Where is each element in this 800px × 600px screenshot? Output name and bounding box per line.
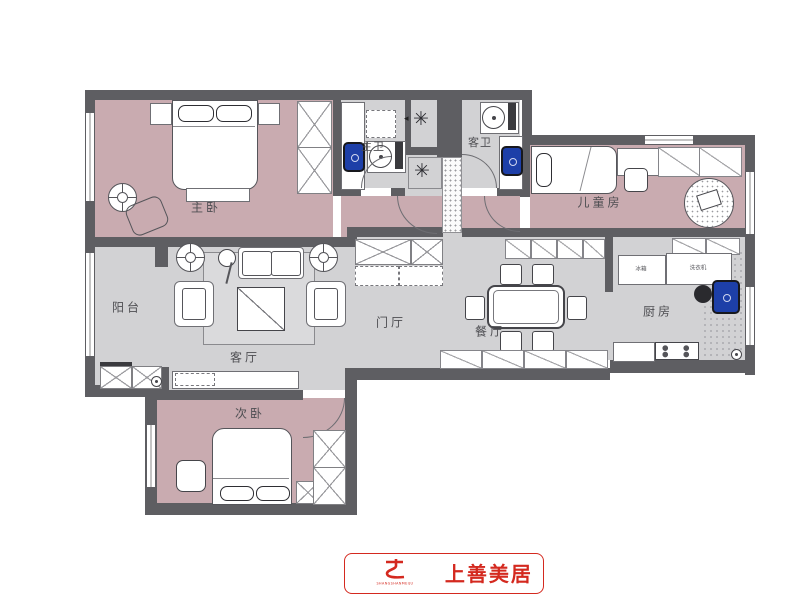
room-label-foyer: 门厅	[376, 314, 406, 331]
sideboard-cabinet	[557, 239, 583, 259]
gas-stove	[655, 342, 699, 360]
balcony-cabinet	[100, 366, 132, 389]
kitchen-sink	[712, 280, 740, 314]
wardrobe	[297, 101, 332, 148]
window	[746, 172, 754, 234]
wall-segment	[391, 188, 405, 196]
desk-chair	[624, 168, 648, 192]
sofa-seat	[271, 251, 301, 276]
floor-drain	[731, 349, 742, 360]
room-label-second-bedroom: 次卧	[235, 405, 265, 422]
shoe-cabinet	[355, 266, 399, 286]
kitchen-counter	[613, 342, 655, 362]
armchair-seat	[314, 288, 338, 320]
pillow	[256, 486, 290, 501]
pillow	[536, 153, 552, 187]
dining-cabinet	[440, 350, 482, 369]
window	[645, 136, 693, 144]
bed-sheet-line	[173, 126, 255, 127]
toilet-bowl	[482, 106, 505, 129]
nightstand	[150, 103, 172, 125]
room-label-kitchen: 厨房	[643, 303, 673, 320]
nightstand	[258, 103, 280, 125]
toilet-tank	[395, 142, 403, 169]
wall-segment	[522, 135, 755, 145]
ceiling-light-icon	[309, 243, 338, 272]
dining-table-inner	[493, 290, 559, 324]
room-label-living-room: 客厅	[230, 349, 260, 366]
pillow	[178, 105, 214, 122]
wall-segment	[333, 100, 341, 196]
wall-segment	[520, 228, 755, 237]
room-label-master-bedroom: 主卧	[191, 199, 221, 216]
sofa-seat	[242, 251, 272, 276]
wall-segment	[405, 147, 442, 155]
logo-mark-column: SHANGSHANMEIJU	[351, 557, 439, 590]
closet-bifold	[658, 147, 701, 177]
dining-cabinet	[524, 350, 566, 369]
logo-mark-icon	[382, 557, 408, 581]
shoe-cabinet	[399, 266, 443, 286]
brand-logo: SHANGSHANMEIJU 上善美居	[344, 553, 544, 594]
dining-cabinet	[566, 350, 608, 369]
window	[746, 287, 754, 345]
wall-segment	[155, 247, 168, 267]
logo-subtext: SHANGSHANMEIJU	[376, 582, 413, 585]
window	[86, 113, 94, 201]
pipe-shaft	[442, 157, 462, 233]
coffee-table	[237, 287, 285, 331]
bed-sheet-line	[213, 478, 289, 479]
dining-chair	[532, 264, 554, 285]
duct-arrow-icon: ◂	[404, 114, 409, 124]
ceiling-light-icon	[176, 243, 205, 272]
sideboard-cabinet	[583, 239, 605, 259]
dining-chair	[567, 296, 587, 320]
dining-cabinet	[482, 350, 524, 369]
toilet-tank	[508, 103, 516, 130]
wall-segment	[605, 237, 613, 292]
sideboard-cabinet	[505, 239, 531, 259]
room-label-kids-room: 儿童房	[577, 194, 622, 211]
room-label-balcony: 阳台	[112, 299, 142, 316]
exhaust-fan-icon: ✳	[413, 110, 429, 129]
logo-name: 上善美居	[445, 564, 533, 584]
hall-cabinet	[411, 239, 443, 265]
wall-segment	[85, 237, 347, 247]
room-label-guest-bath: 客卫	[468, 134, 492, 150]
sideboard-cabinet	[531, 239, 557, 259]
wok-basin	[694, 285, 712, 303]
bathroom-sink	[501, 146, 523, 176]
washer-label: 洗衣机	[690, 264, 707, 272]
wall-segment	[357, 368, 610, 380]
closet-bifold	[699, 147, 742, 177]
wardrobe	[313, 467, 346, 505]
armchair-seat	[182, 288, 206, 320]
room-label-dining-room: 餐厅	[475, 323, 505, 340]
wall-segment	[85, 90, 532, 100]
room-label-master-bath: 主卫	[361, 138, 385, 154]
fridge-label: 冰箱	[635, 265, 646, 273]
bedroom-chair	[176, 460, 206, 492]
pillow	[216, 105, 252, 122]
wall-segment	[157, 390, 303, 400]
window	[86, 253, 94, 356]
floor-drain	[151, 376, 162, 387]
wardrobe	[313, 430, 346, 468]
wall-segment	[345, 368, 357, 503]
window	[147, 425, 155, 487]
wardrobe	[297, 147, 332, 194]
hall-cabinet	[355, 239, 411, 265]
pillow	[220, 486, 254, 501]
dining-chair	[500, 264, 522, 285]
dining-chair	[532, 331, 554, 352]
shower-area	[366, 110, 396, 138]
plant-figure	[218, 249, 236, 267]
tv-cabinet-box	[175, 373, 215, 386]
exhaust-fan-icon: ✳	[414, 162, 430, 181]
dining-chair	[465, 296, 485, 320]
floor-plan: ✳ ◂ ✳ 冰箱 洗衣机	[0, 0, 800, 600]
